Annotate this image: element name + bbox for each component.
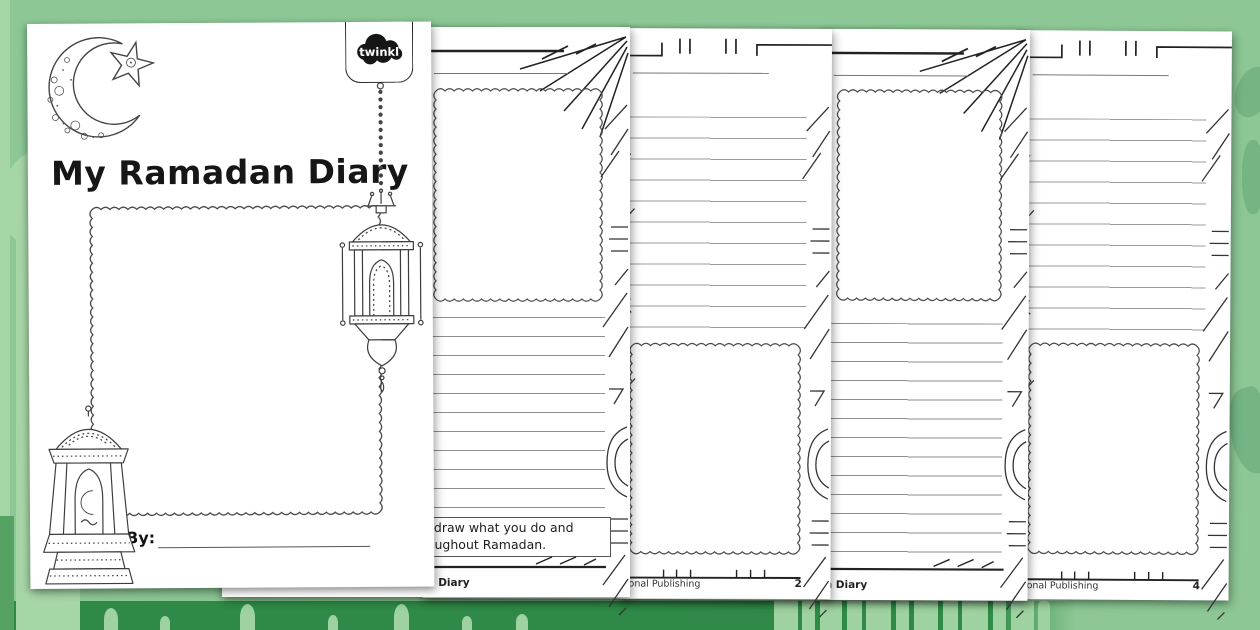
title-write-line <box>434 73 568 74</box>
left-dark-silhouette <box>0 516 14 630</box>
dome-silhouette <box>160 616 170 630</box>
page-number: 2 <box>795 578 802 590</box>
crescent-moon-and-star-icon <box>37 35 162 148</box>
lantern-chain-icon <box>373 82 388 194</box>
leaf-silhouette <box>1242 140 1260 214</box>
dome-silhouette <box>462 616 472 630</box>
footer-publisher: onal Publishing <box>629 579 701 590</box>
dome-silhouette <box>240 604 255 630</box>
right-margin-decor <box>1197 91 1230 621</box>
picture-box <box>629 343 802 555</box>
star-icon <box>105 37 157 87</box>
dome-silhouette <box>516 614 528 630</box>
twinkl-logo: twinkl <box>345 22 413 83</box>
instruction-box: d draw what you do and roughout Ramadan. <box>419 517 611 557</box>
dome-silhouette <box>394 604 409 630</box>
footer-border <box>418 555 610 569</box>
standing-lantern-icon <box>35 403 142 590</box>
hanging-lantern-icon <box>328 190 435 403</box>
right-margin-decor <box>996 90 1028 620</box>
twinkl-cloud-icon: twinkl <box>351 33 407 65</box>
instruction-line-2: roughout Ramadan. <box>422 537 610 554</box>
title-write-line <box>633 73 769 74</box>
diary-cover-page: My Ramadan Diary twinkl <box>27 22 434 589</box>
worksheet-preview: onal Publishing 4 <box>0 0 1260 630</box>
picture-box <box>836 89 1003 302</box>
footer-border <box>816 557 1008 572</box>
footer-publisher: onal Publishing <box>1027 580 1099 591</box>
picture-box <box>433 88 603 302</box>
page-number: 4 <box>1193 580 1200 592</box>
picture-box <box>1027 342 1200 555</box>
right-margin-decor <box>799 89 830 619</box>
dome-silhouette <box>104 608 118 630</box>
instruction-line-1: d draw what you do and <box>422 520 610 537</box>
dome-silhouette <box>328 615 338 630</box>
title-write-line <box>1033 74 1169 76</box>
name-write-line <box>158 546 370 548</box>
page-title: My Ramadan Diary <box>28 152 432 193</box>
twinkl-logo-text: twinkl <box>359 45 399 59</box>
